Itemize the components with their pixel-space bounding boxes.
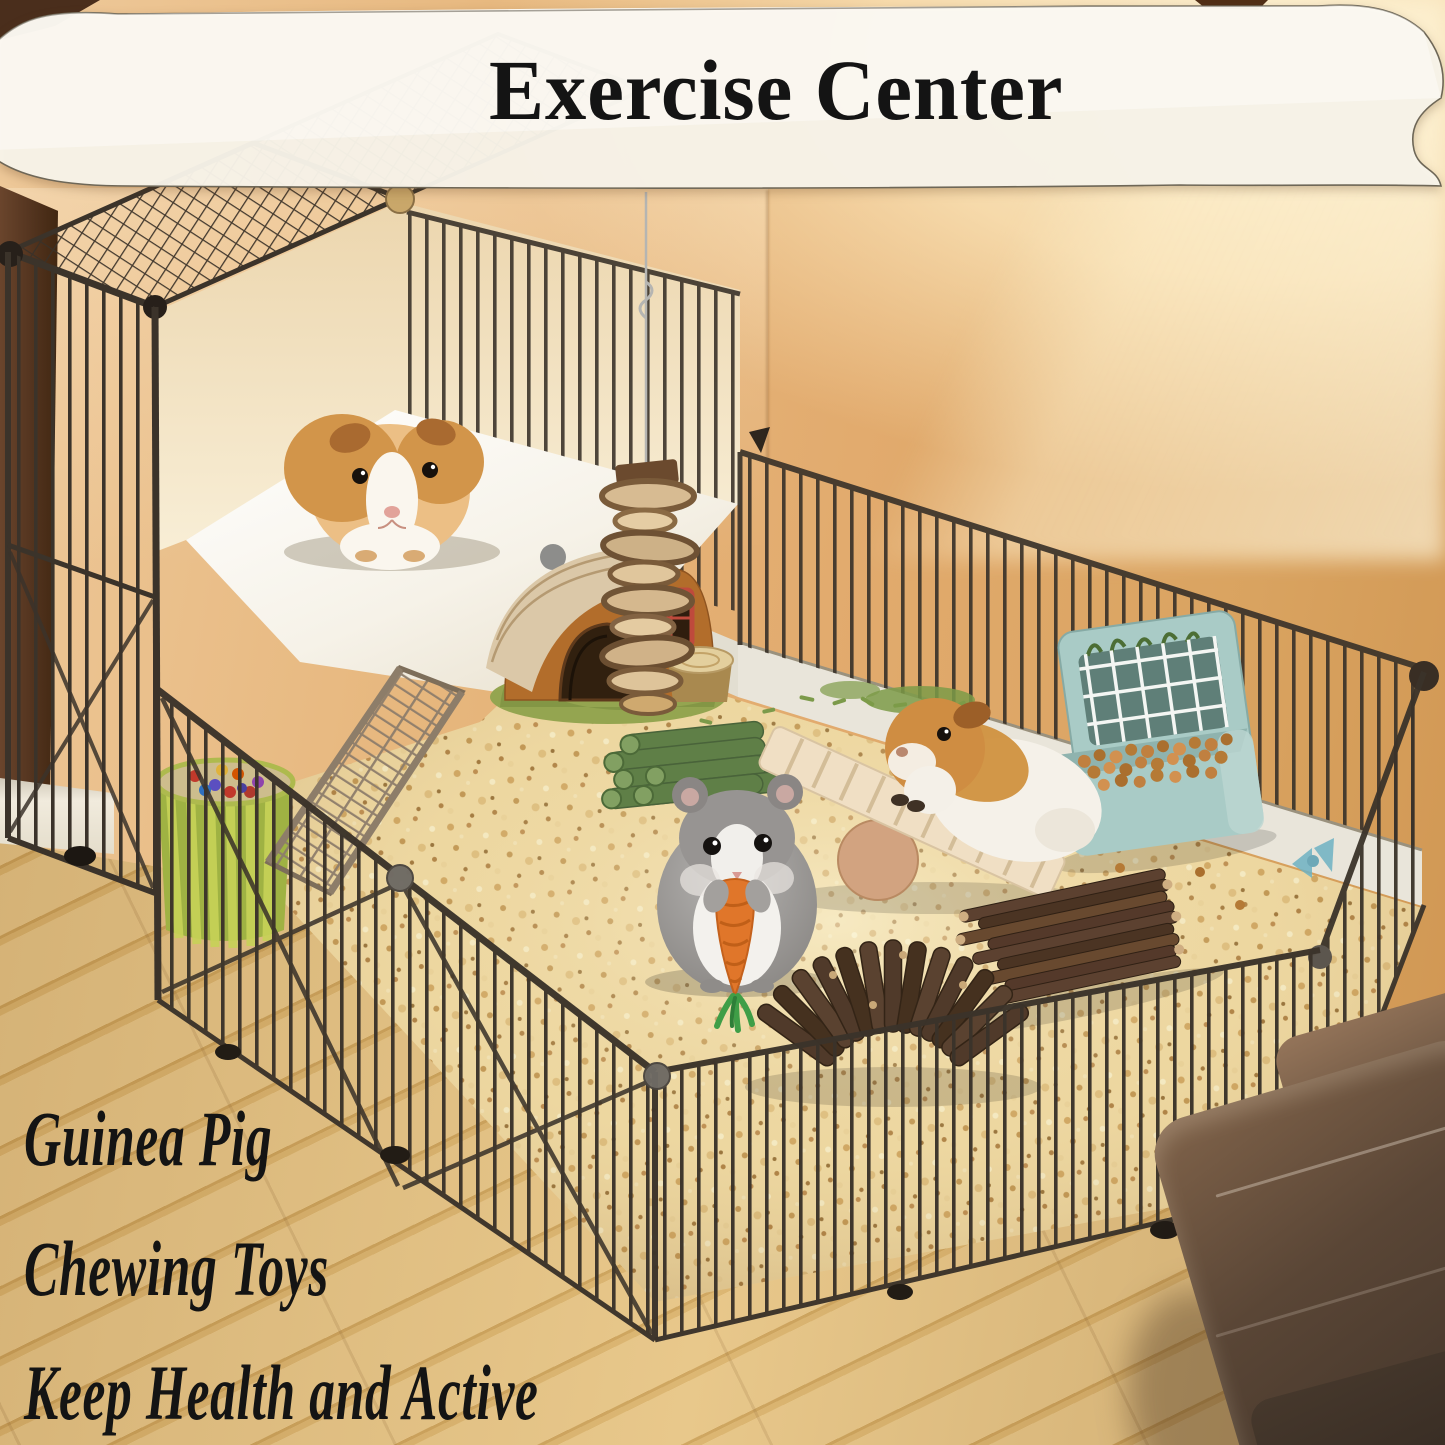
panel-foot	[380, 1146, 410, 1164]
banner-title: Exercise Center	[29, 40, 1416, 140]
tower-left-panel	[8, 252, 155, 893]
panel-clip	[749, 427, 770, 453]
caption-keep-health: Keep Health and Active	[24, 1348, 538, 1438]
panel-foot	[64, 846, 96, 866]
ball-connector	[644, 1063, 670, 1089]
panel-foot	[887, 1284, 913, 1300]
guinea-pig-upper	[284, 414, 500, 571]
ball-connector	[387, 865, 413, 891]
leather-sofa	[1175, 995, 1445, 1445]
product-image: Exercise Center Guinea Pig Chewing Toys …	[0, 0, 1445, 1445]
panel-foot	[215, 1044, 241, 1060]
caption-guinea-pig: Guinea Pig	[24, 1094, 272, 1184]
title-banner: Exercise Center	[0, 0, 1445, 205]
caption-chewing-toys: Chewing Toys	[24, 1224, 329, 1314]
